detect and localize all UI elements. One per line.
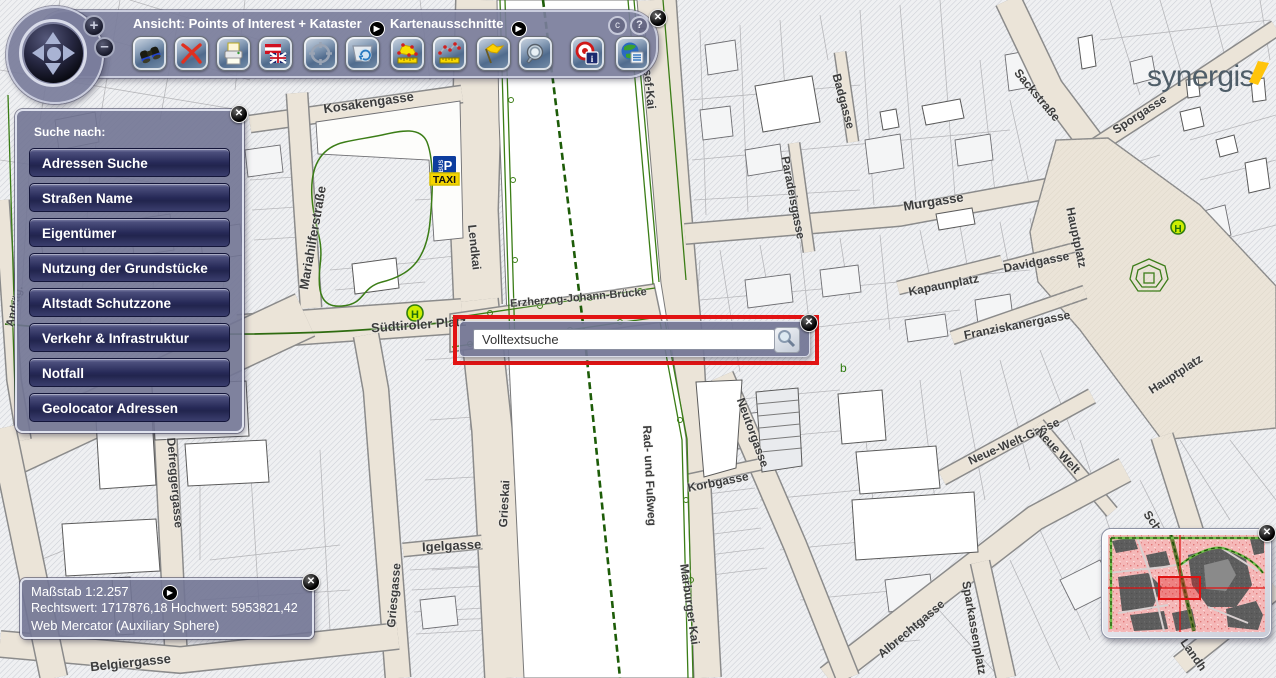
svg-text:b: b (840, 361, 847, 375)
svg-text:BUS: BUS (439, 160, 445, 173)
svg-text:P: P (444, 158, 453, 173)
svg-text:H: H (1174, 224, 1181, 235)
svg-text:TAXI: TAXI (433, 174, 456, 186)
